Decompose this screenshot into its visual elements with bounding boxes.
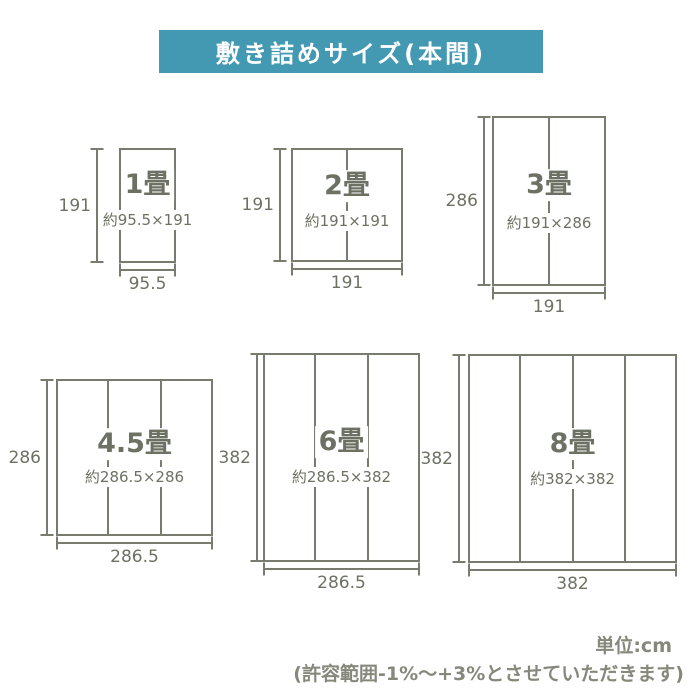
- tatami-divider: [346, 148, 348, 262]
- size-dimensions-label: 約191×191: [301, 211, 394, 231]
- height-dimension-line: 191: [96, 148, 98, 263]
- size-dimensions-label: 約286.5×286: [81, 467, 188, 487]
- width-dimension-label: 286.5: [110, 547, 159, 567]
- width-dimension-label: 95.5: [129, 274, 167, 294]
- figure-3jo: 286 191 3畳 約191×286: [492, 116, 606, 286]
- width-dimension-label: 286.5: [317, 573, 366, 593]
- size-name-label: 6畳: [315, 426, 369, 458]
- height-dimension-line: 382: [256, 353, 258, 562]
- figure-45jo: 286 286.5 4.5畳 約286.5×286: [56, 379, 213, 536]
- tolerance-note: (許容範囲-1%〜+3%とさせていただきます): [293, 659, 684, 686]
- width-dimension-label: 382: [556, 574, 588, 594]
- width-dimension-line: 286.5: [56, 542, 213, 544]
- size-name-label: 1畳: [121, 169, 175, 201]
- size-name-label: 8畳: [546, 428, 600, 460]
- page-title: 敷き詰めサイズ(本間): [216, 34, 486, 69]
- size-name-label: 3畳: [522, 169, 576, 201]
- title-banner: 敷き詰めサイズ(本間): [159, 30, 543, 73]
- width-dimension-line: 191: [492, 292, 606, 294]
- figure-8jo: 382 382 8畳 約382×382: [468, 354, 677, 563]
- size-name-label: 4.5畳: [93, 428, 176, 460]
- width-dimension-line: 191: [291, 268, 403, 270]
- tatami-divider: [519, 354, 521, 563]
- height-dimension-label: 286: [9, 448, 41, 468]
- height-dimension-label: 382: [219, 448, 251, 468]
- width-dimension-label: 191: [533, 297, 565, 317]
- width-dimension-line: 95.5: [119, 269, 176, 271]
- figure-2jo: 191 191 2畳 約191×191: [291, 148, 403, 262]
- tatami-rect-1jo: [119, 148, 176, 263]
- size-dimensions-label: 約382×382: [526, 469, 619, 489]
- width-dimension-label: 191: [331, 273, 363, 293]
- size-dimensions-label: 約95.5×191: [99, 210, 197, 230]
- height-dimension-line: 286: [46, 379, 48, 536]
- figure-1jo: 191 95.5 1畳 約95.5×191: [119, 148, 176, 263]
- height-dimension-label: 191: [242, 195, 274, 215]
- height-dimension-line: 191: [279, 148, 281, 262]
- width-dimension-line: 286.5: [263, 568, 420, 570]
- height-dimension-line: 286: [483, 116, 485, 286]
- tatami-size-diagram: 敷き詰めサイズ(本間) 191 95.5 1畳 約95.5×191 191 19…: [0, 0, 700, 700]
- tatami-divider: [624, 354, 626, 563]
- unit-note: 単位:cm: [595, 631, 672, 658]
- tatami-divider: [548, 116, 550, 286]
- figure-6jo: 382 286.5 6畳 約286.5×382: [263, 353, 420, 562]
- height-dimension-label: 286: [446, 191, 478, 211]
- height-dimension-line: 382: [458, 354, 460, 563]
- width-dimension-line: 382: [468, 569, 677, 571]
- size-dimensions-label: 約286.5×382: [288, 467, 395, 487]
- height-dimension-label: 382: [421, 449, 453, 469]
- size-name-label: 2畳: [320, 170, 374, 202]
- size-dimensions-label: 約191×286: [503, 213, 596, 233]
- height-dimension-label: 191: [59, 196, 91, 216]
